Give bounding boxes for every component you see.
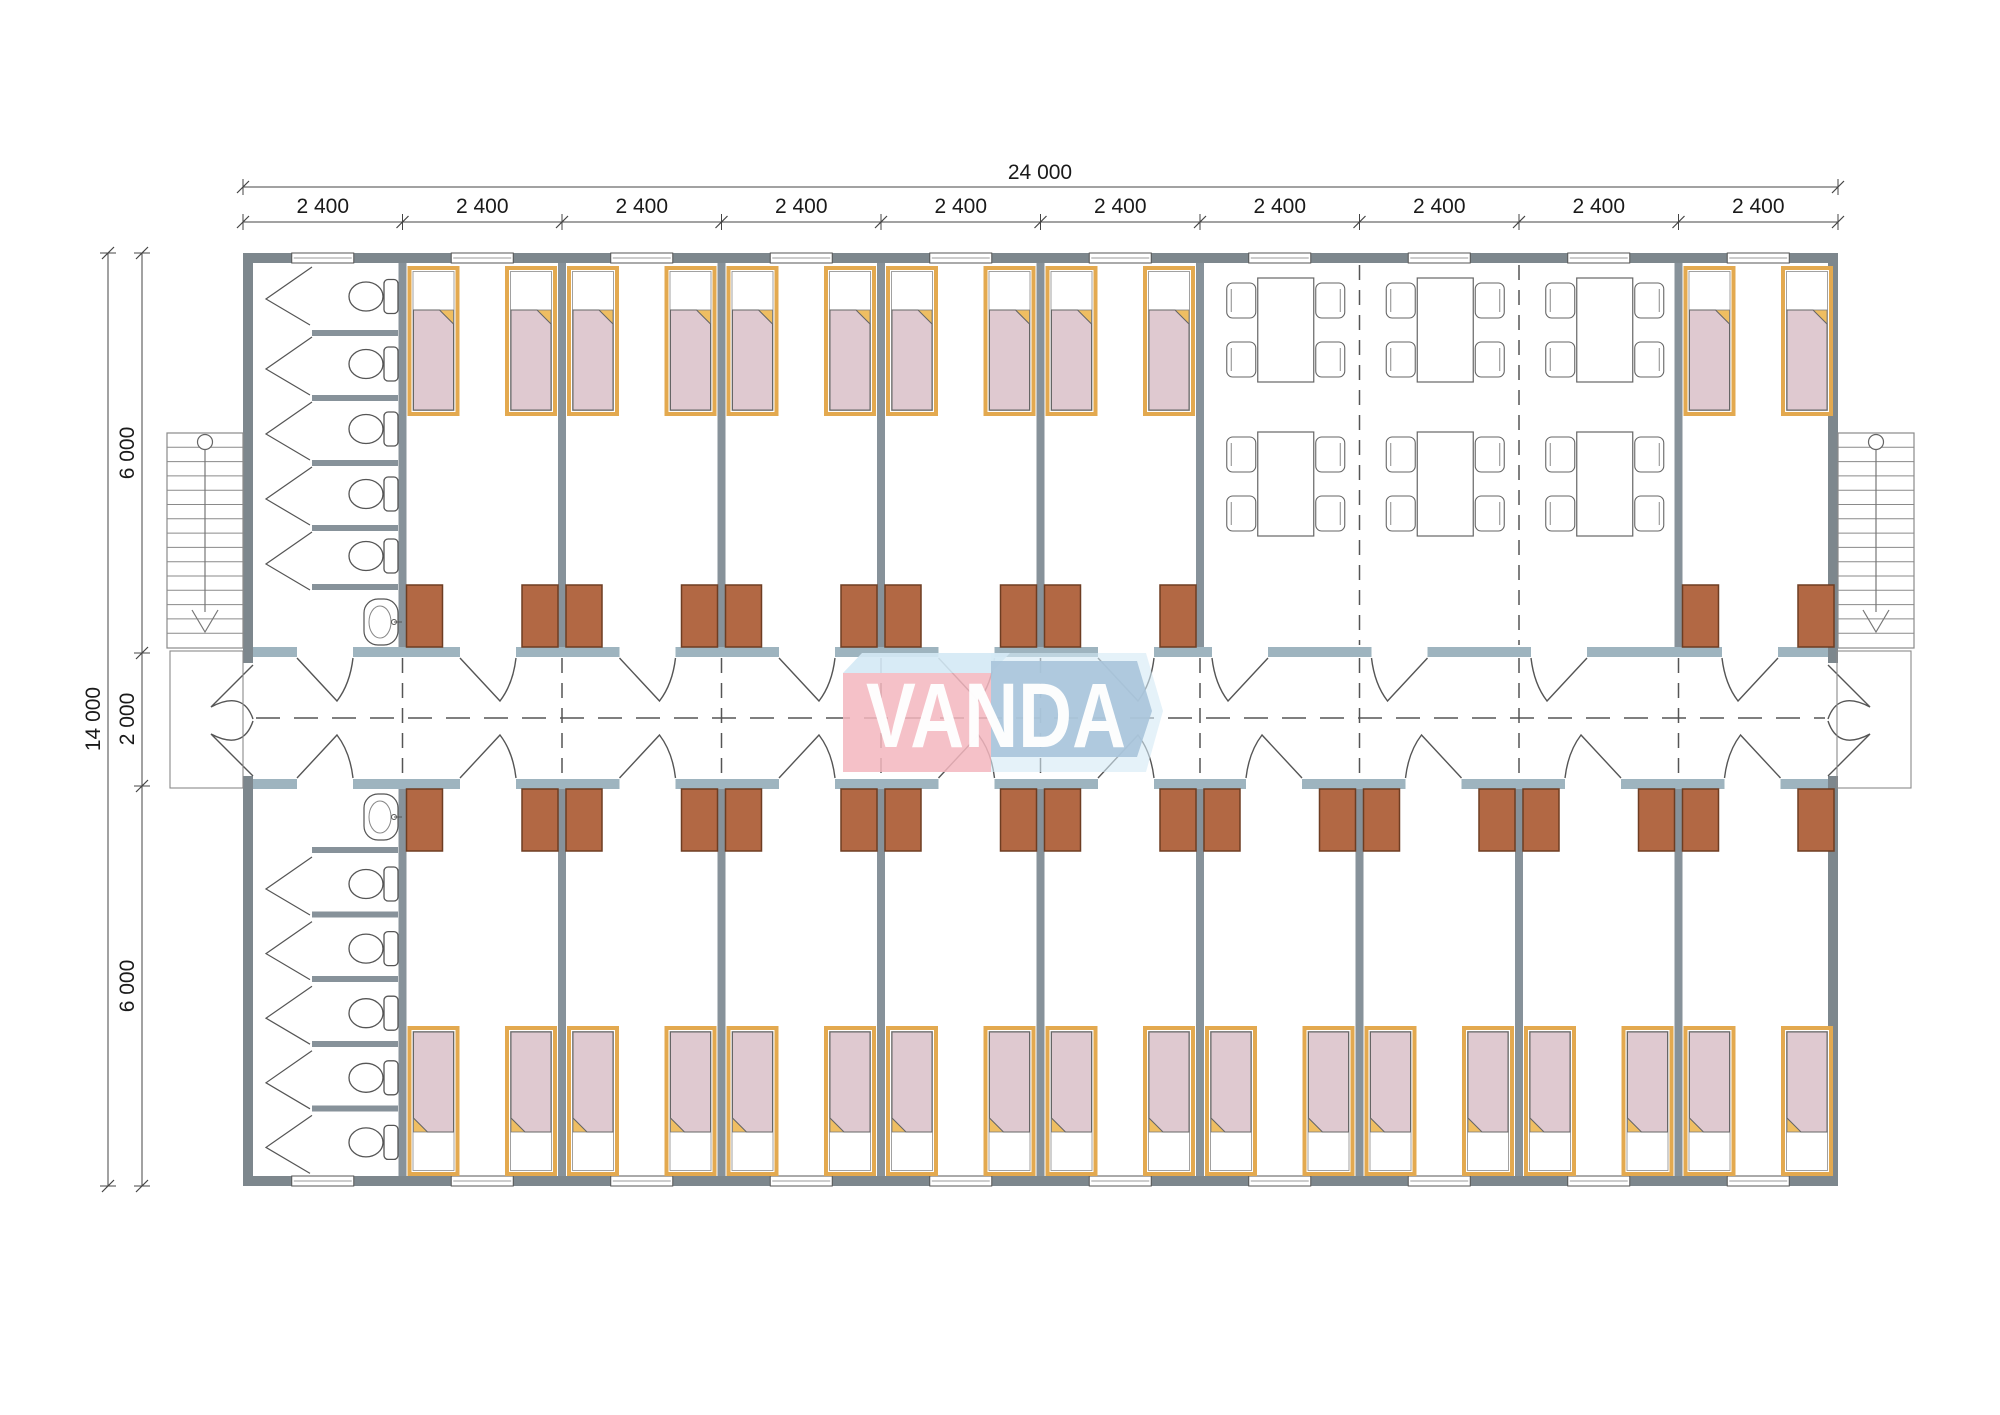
bed [507, 1028, 555, 1174]
dining-table [1546, 432, 1664, 536]
sink-icon [364, 599, 402, 645]
window [292, 253, 354, 263]
window [451, 1176, 513, 1186]
bed [826, 268, 874, 414]
vanda-logo-text: VANDA [866, 665, 1126, 767]
landing-left [170, 651, 243, 788]
wardrobe [682, 585, 718, 647]
wardrobe [726, 585, 762, 647]
dining-table [1546, 278, 1664, 382]
dimension-top-segment: 2 400 [775, 195, 828, 218]
window [1089, 253, 1151, 263]
stairs-right [1838, 433, 1914, 648]
wardrobe [841, 789, 877, 851]
window [292, 1176, 354, 1186]
stall-door [266, 922, 312, 980]
bed [1305, 1028, 1353, 1174]
window [611, 253, 673, 263]
stall-door [266, 267, 312, 325]
toilet-icon [349, 996, 398, 1030]
bathroom-bottom [266, 794, 402, 1173]
wardrobe [1001, 585, 1037, 647]
stall-door [266, 986, 312, 1044]
wardrobe [726, 789, 762, 851]
wardrobe [566, 585, 602, 647]
window [1727, 1176, 1789, 1186]
stall-door [266, 1051, 312, 1109]
bed [1048, 1028, 1096, 1174]
window [1727, 253, 1789, 263]
door-swing [620, 658, 676, 701]
toilet-icon [349, 1125, 398, 1159]
wardrobe [407, 585, 443, 647]
door-swing [297, 735, 353, 778]
sink-icon [364, 794, 402, 840]
toilet-icon [349, 347, 398, 381]
dining-table [1386, 432, 1504, 536]
door-swing [1372, 658, 1428, 701]
stall-door [266, 467, 312, 525]
bed [1367, 1028, 1415, 1174]
bed [1526, 1028, 1574, 1174]
stall-door [266, 857, 312, 915]
door-swing [1406, 735, 1462, 778]
wardrobe [1798, 789, 1834, 851]
toilet-icon [349, 539, 398, 573]
toilet-icon [349, 477, 398, 511]
bed [1686, 268, 1734, 414]
window [1568, 253, 1630, 263]
door-swing [460, 658, 516, 701]
door-swing [1565, 735, 1621, 778]
door-swing [297, 658, 353, 701]
wardrobe [1045, 585, 1081, 647]
dimension-left-segment: 2 000 [116, 693, 139, 746]
wardrobe [1001, 789, 1037, 851]
wardrobe [1045, 789, 1081, 851]
window [1408, 253, 1470, 263]
door-swing [620, 735, 676, 778]
bed [667, 268, 715, 414]
window [1089, 1176, 1151, 1186]
floor-plan-svg: 2 4002 4002 4002 4002 4002 4002 4002 400… [0, 0, 2000, 1415]
bed [410, 1028, 458, 1174]
wardrobe [1683, 585, 1719, 647]
dimension-top-segment: 2 400 [615, 195, 668, 218]
landing-right [1837, 651, 1911, 788]
floor-plan: 2 4002 4002 4002 4002 4002 4002 4002 400… [0, 0, 2000, 1415]
bed [507, 268, 555, 414]
wardrobe [841, 585, 877, 647]
wardrobe [1160, 585, 1196, 647]
door-swing [1212, 658, 1268, 701]
bed [986, 268, 1034, 414]
bathroom-top [266, 267, 402, 645]
wardrobe [682, 789, 718, 851]
window [1249, 1176, 1311, 1186]
bed [986, 1028, 1034, 1174]
toilet-icon [349, 412, 398, 446]
entrance-door-swing [1828, 721, 1870, 776]
vanda-logo: VANDA [843, 653, 1163, 772]
window [611, 1176, 673, 1186]
wardrobe [522, 585, 558, 647]
door-swing [779, 735, 835, 778]
window [1568, 1176, 1630, 1186]
bed [569, 268, 617, 414]
entrance-door-swing [1828, 665, 1870, 719]
window [930, 1176, 992, 1186]
dimension-top-segment: 2 400 [456, 195, 509, 218]
wardrobe [1683, 789, 1719, 851]
dimension-top-segment: 2 400 [1572, 195, 1625, 218]
bed [1145, 268, 1193, 414]
wardrobe [1320, 789, 1356, 851]
stall-door [266, 337, 312, 395]
dining-table [1386, 278, 1504, 382]
wardrobe [1523, 789, 1559, 851]
bed [1624, 1028, 1672, 1174]
entrance-door-swing [211, 665, 253, 719]
window [770, 253, 832, 263]
window [1249, 253, 1311, 263]
entrance-door-swing [211, 721, 253, 776]
window [770, 1176, 832, 1186]
dimension-top-segment: 2 400 [1413, 195, 1466, 218]
dimension-left-segment: 6 000 [116, 960, 139, 1013]
toilet-icon [349, 1061, 398, 1095]
door-swing [779, 658, 835, 701]
dimension-left-segment: 6 000 [116, 427, 139, 480]
wardrobe [1639, 789, 1675, 851]
door-swing [460, 735, 516, 778]
dining-table [1227, 432, 1345, 536]
bed [729, 1028, 777, 1174]
wardrobe [1798, 585, 1834, 647]
dining-table [1227, 278, 1345, 382]
bed [1048, 268, 1096, 414]
door-swing [1722, 658, 1778, 701]
bed [729, 268, 777, 414]
stall-door [266, 1115, 312, 1173]
door-swing [1725, 735, 1781, 778]
dimension-top-segment: 2 400 [934, 195, 987, 218]
bed [667, 1028, 715, 1174]
bed [1464, 1028, 1512, 1174]
window [930, 253, 992, 263]
bed [1783, 268, 1831, 414]
bed [1207, 1028, 1255, 1174]
wardrobe [1204, 789, 1240, 851]
dimension-total-width: 24 000 [1008, 161, 1072, 184]
bed [888, 1028, 936, 1174]
wardrobe [1364, 789, 1400, 851]
bed [1145, 1028, 1193, 1174]
stairs-left [167, 433, 243, 648]
door-swing [1246, 735, 1302, 778]
dimension-top-segment: 2 400 [296, 195, 349, 218]
stall-door [266, 532, 312, 590]
toilet-icon [349, 280, 398, 314]
bed [1783, 1028, 1831, 1174]
dimension-top-segment: 2 400 [1253, 195, 1306, 218]
door-swing [1531, 658, 1587, 701]
dining-area [1227, 278, 1664, 536]
wardrobe [566, 789, 602, 851]
dimension-top-segment: 2 400 [1094, 195, 1147, 218]
stall-door [266, 402, 312, 460]
wardrobe [885, 585, 921, 647]
bed [888, 268, 936, 414]
dimension-total-height: 14 000 [82, 687, 105, 751]
bed [1686, 1028, 1734, 1174]
wardrobe [1160, 789, 1196, 851]
wardrobe [522, 789, 558, 851]
wardrobe [1479, 789, 1515, 851]
bed [569, 1028, 617, 1174]
bed [410, 268, 458, 414]
wardrobe [885, 789, 921, 851]
toilet-icon [349, 867, 398, 901]
bed [826, 1028, 874, 1174]
dimension-top-segment: 2 400 [1732, 195, 1785, 218]
wardrobe [407, 789, 443, 851]
window [451, 253, 513, 263]
toilet-icon [349, 932, 398, 966]
window [1408, 1176, 1470, 1186]
